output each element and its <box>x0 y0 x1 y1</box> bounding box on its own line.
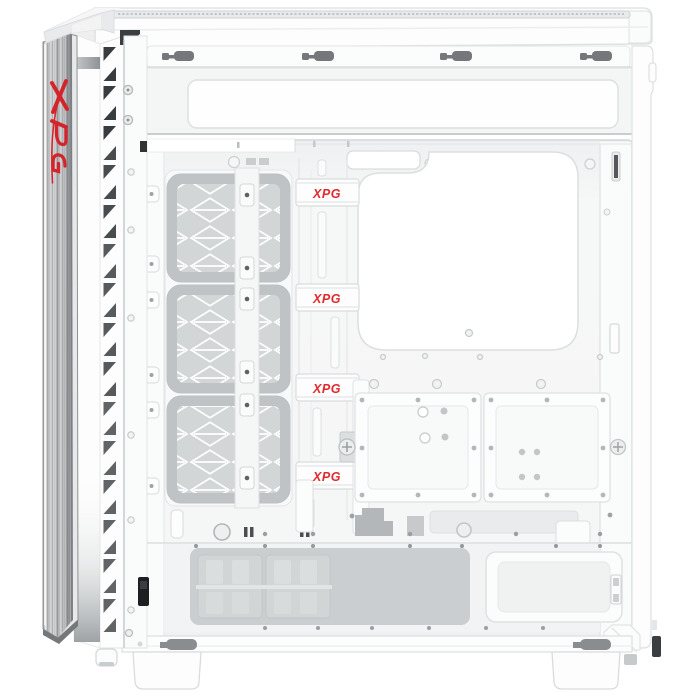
svg-text:XPG: XPG <box>312 292 341 306</box>
svg-text:XPG: XPG <box>312 382 341 396</box>
svg-text:XPG: XPG <box>312 470 341 484</box>
svg-text:XPG: XPG <box>312 187 341 201</box>
